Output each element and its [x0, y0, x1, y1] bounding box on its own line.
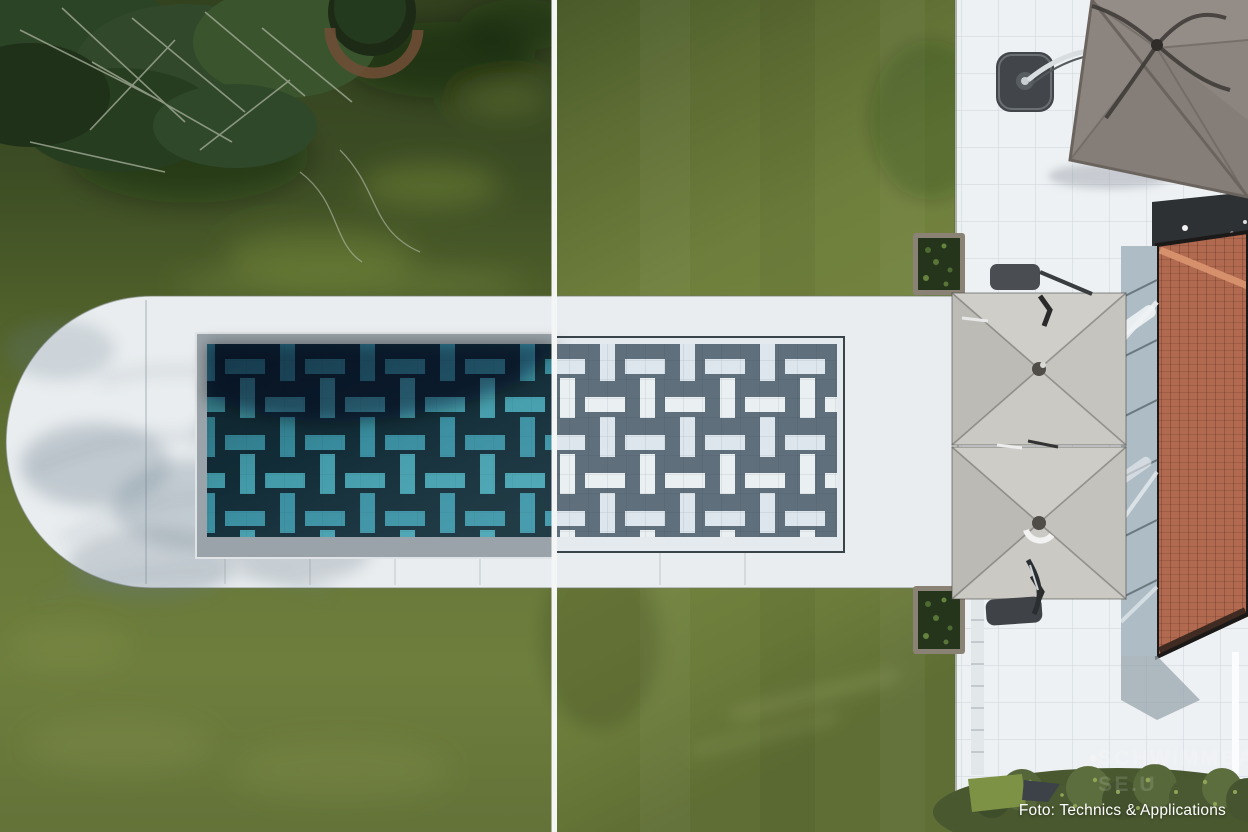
pool-basin-water: [207, 344, 560, 537]
photo-caption: Foto: Technics & Applications: [1019, 802, 1226, 820]
watermark: SCHWIMMBA SE.U: [1098, 746, 1248, 798]
pool-basin-covered: [554, 344, 837, 537]
divider-line: [552, 0, 558, 832]
patio-umbrella-top: [952, 293, 1126, 445]
pool: [196, 333, 845, 558]
watermark-line1: SCHWIMMBA: [1098, 746, 1248, 772]
scene-canvas: [0, 0, 1248, 832]
bright-hedge-block: [968, 774, 1026, 812]
patio-border-course: [971, 598, 984, 775]
aerial-pool-photo: SCHWIMMBA SE.U Foto: Technics & Applicat…: [0, 0, 1248, 832]
hedge-planter-top: [913, 233, 965, 295]
house-roof: [1155, 232, 1248, 657]
umbrella-base-topright: [996, 52, 1054, 112]
house: [1152, 192, 1248, 657]
watermark-line2: SE.U: [1098, 772, 1248, 798]
